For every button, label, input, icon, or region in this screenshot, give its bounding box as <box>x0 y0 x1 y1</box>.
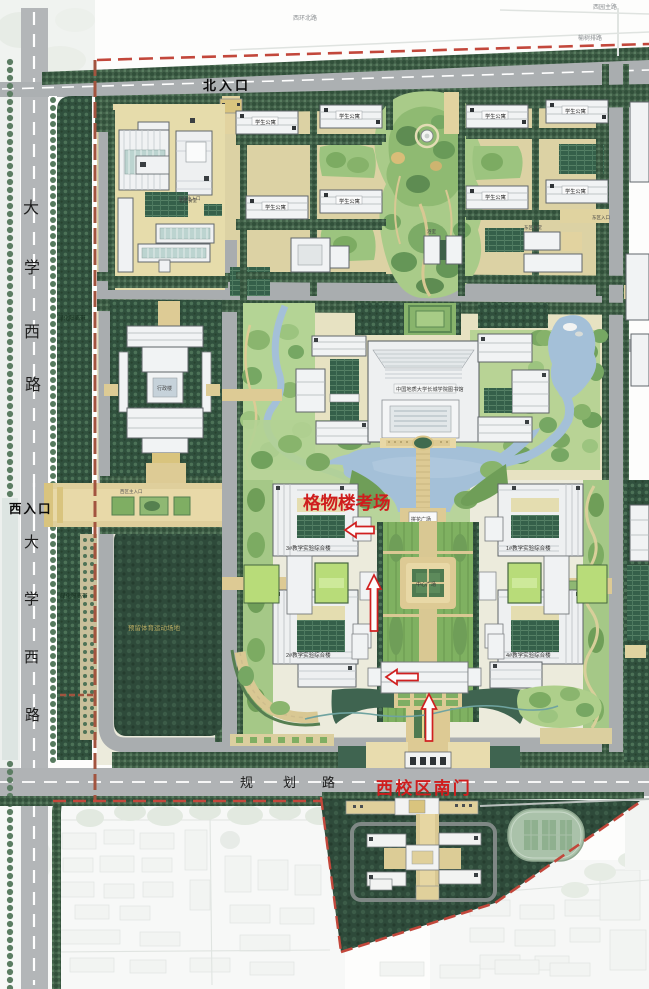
svg-text:西入口: 西入口 <box>9 502 53 516</box>
svg-text:东区食堂: 东区食堂 <box>524 224 542 231</box>
svg-text:中国地质大学长城学院图书馆: 中国地质大学长城学院图书馆 <box>396 385 463 393</box>
svg-text:格物楼考场: 格物楼考场 <box>303 493 391 513</box>
svg-text:学生公寓: 学生公寓 <box>565 187 586 195</box>
svg-text:北入口: 北入口 <box>203 78 251 93</box>
svg-text:划: 划 <box>283 775 296 790</box>
svg-text:中心广场: 中心广场 <box>416 581 436 588</box>
svg-text:浴室: 浴室 <box>427 228 436 235</box>
svg-text:学生公寓: 学生公寓 <box>265 203 286 211</box>
svg-text:2#教学实验综合楼: 2#教学实验综合楼 <box>286 651 331 659</box>
svg-text:大: 大 <box>24 534 39 551</box>
svg-text:西区主入口: 西区主入口 <box>120 488 143 495</box>
svg-text:东区入口: 东区入口 <box>592 214 610 221</box>
svg-text:学: 学 <box>24 591 39 608</box>
svg-text:学生公寓: 学生公寓 <box>485 193 506 201</box>
svg-text:学生公寓: 学生公寓 <box>339 112 360 120</box>
svg-text:绿化隔离带: 绿化隔离带 <box>60 592 88 600</box>
svg-text:3#教学实验综合楼: 3#教学实验综合楼 <box>286 544 331 552</box>
svg-text:西环北路: 西环北路 <box>293 14 317 22</box>
svg-text:路: 路 <box>25 376 41 394</box>
svg-text:学: 学 <box>24 259 40 277</box>
svg-text:规: 规 <box>240 775 253 790</box>
svg-text:学生公寓: 学生公寓 <box>485 112 506 120</box>
svg-text:行政楼: 行政楼 <box>157 385 172 392</box>
svg-text:西园主路: 西园主路 <box>593 3 617 11</box>
svg-text:榆树排路: 榆树排路 <box>578 34 602 42</box>
svg-text:绿化隔离带: 绿化隔离带 <box>58 314 86 322</box>
svg-text:北区主入口: 北区主入口 <box>178 195 201 202</box>
svg-text:西校区南门: 西校区南门 <box>376 778 472 798</box>
svg-text:预留体育运动场地: 预留体育运动场地 <box>128 623 181 632</box>
svg-text:学生公寓: 学生公寓 <box>565 107 586 115</box>
svg-text:学生公寓: 学生公寓 <box>255 118 276 126</box>
svg-text:大: 大 <box>23 199 39 217</box>
svg-text:学生公寓: 学生公寓 <box>339 197 360 205</box>
svg-text:4#教学实验综合楼: 4#教学实验综合楼 <box>506 651 551 659</box>
svg-text:西: 西 <box>24 324 40 341</box>
svg-text:1#教学实验综合楼: 1#教学实验综合楼 <box>506 544 551 552</box>
svg-text:路: 路 <box>322 775 335 790</box>
svg-text:西: 西 <box>24 649 39 666</box>
svg-text:路: 路 <box>25 707 40 724</box>
